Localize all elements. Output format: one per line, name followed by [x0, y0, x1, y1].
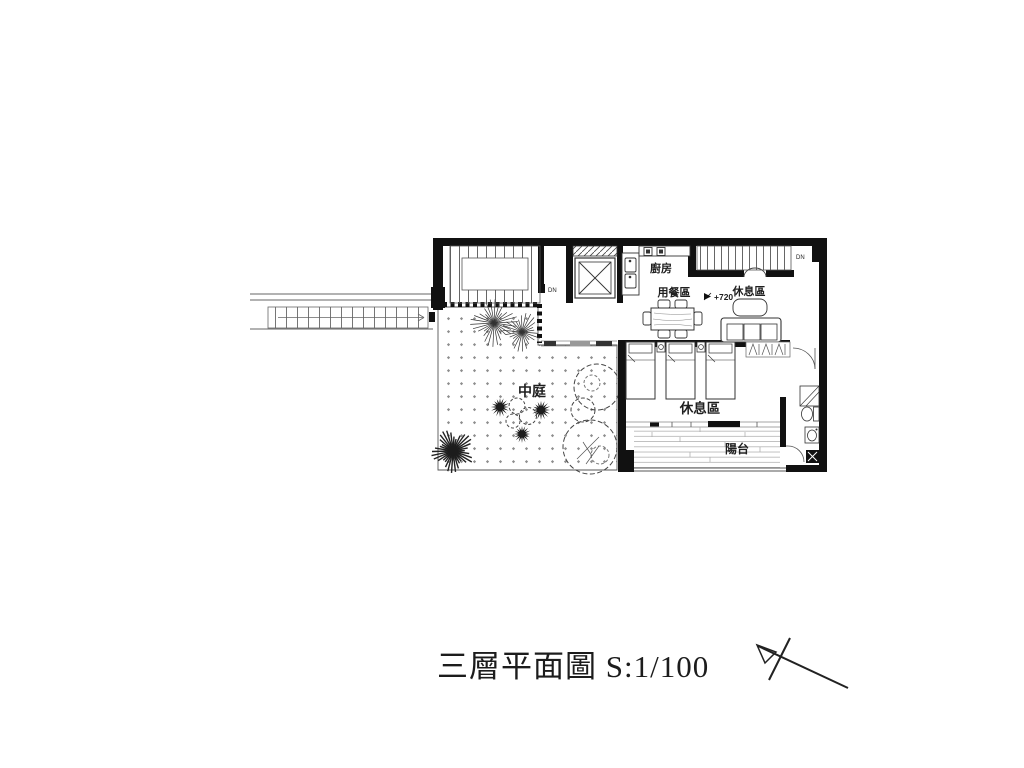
bedroom-sliding-door — [626, 421, 780, 427]
bed-icon — [666, 342, 695, 399]
dining-table-icon — [643, 300, 702, 338]
stair-topleft — [450, 246, 540, 303]
elevator-icon — [573, 246, 617, 298]
bathroom-fixtures — [786, 386, 819, 463]
elevation-label: +720 — [714, 292, 733, 302]
lounge-upper-furniture — [721, 299, 781, 342]
balcony-label: 陽台 — [725, 441, 749, 456]
stair-right-dn-label: DN — [796, 255, 805, 261]
balcony-area — [634, 427, 786, 471]
plan-title: 三層平面圖 S:1/100 — [437, 641, 709, 686]
stair-topright — [697, 246, 791, 270]
courtyard-label: 中庭 — [518, 383, 547, 399]
lounge-bedroom-label: 休息區 — [679, 400, 721, 416]
hall-sliding-door — [541, 341, 617, 346]
corridor-door-icon — [793, 348, 815, 369]
elevation-marker — [704, 293, 711, 300]
bed-icons — [626, 342, 735, 399]
stair-left-dn-label: DN — [548, 288, 557, 294]
lounge-upper-label: 休息區 — [732, 284, 766, 298]
kitchen-label: 廚房 — [650, 261, 672, 275]
toilet-tank-icon — [814, 407, 820, 421]
bed-icon — [626, 342, 655, 399]
dining-label: 用餐區 — [658, 285, 691, 299]
entry-bridge-stair — [250, 294, 435, 329]
bathroom-door-icon — [788, 446, 804, 462]
drawing-sheet: 廚房 用餐區 休息區 中庭 休息區 陽台 +720 DN DN 三層平面圖 S:… — [0, 0, 1024, 768]
north-arrow-icon — [757, 638, 848, 688]
bed-icon — [706, 342, 735, 399]
toilet-icon — [802, 407, 813, 421]
closet-icon — [746, 342, 790, 357]
